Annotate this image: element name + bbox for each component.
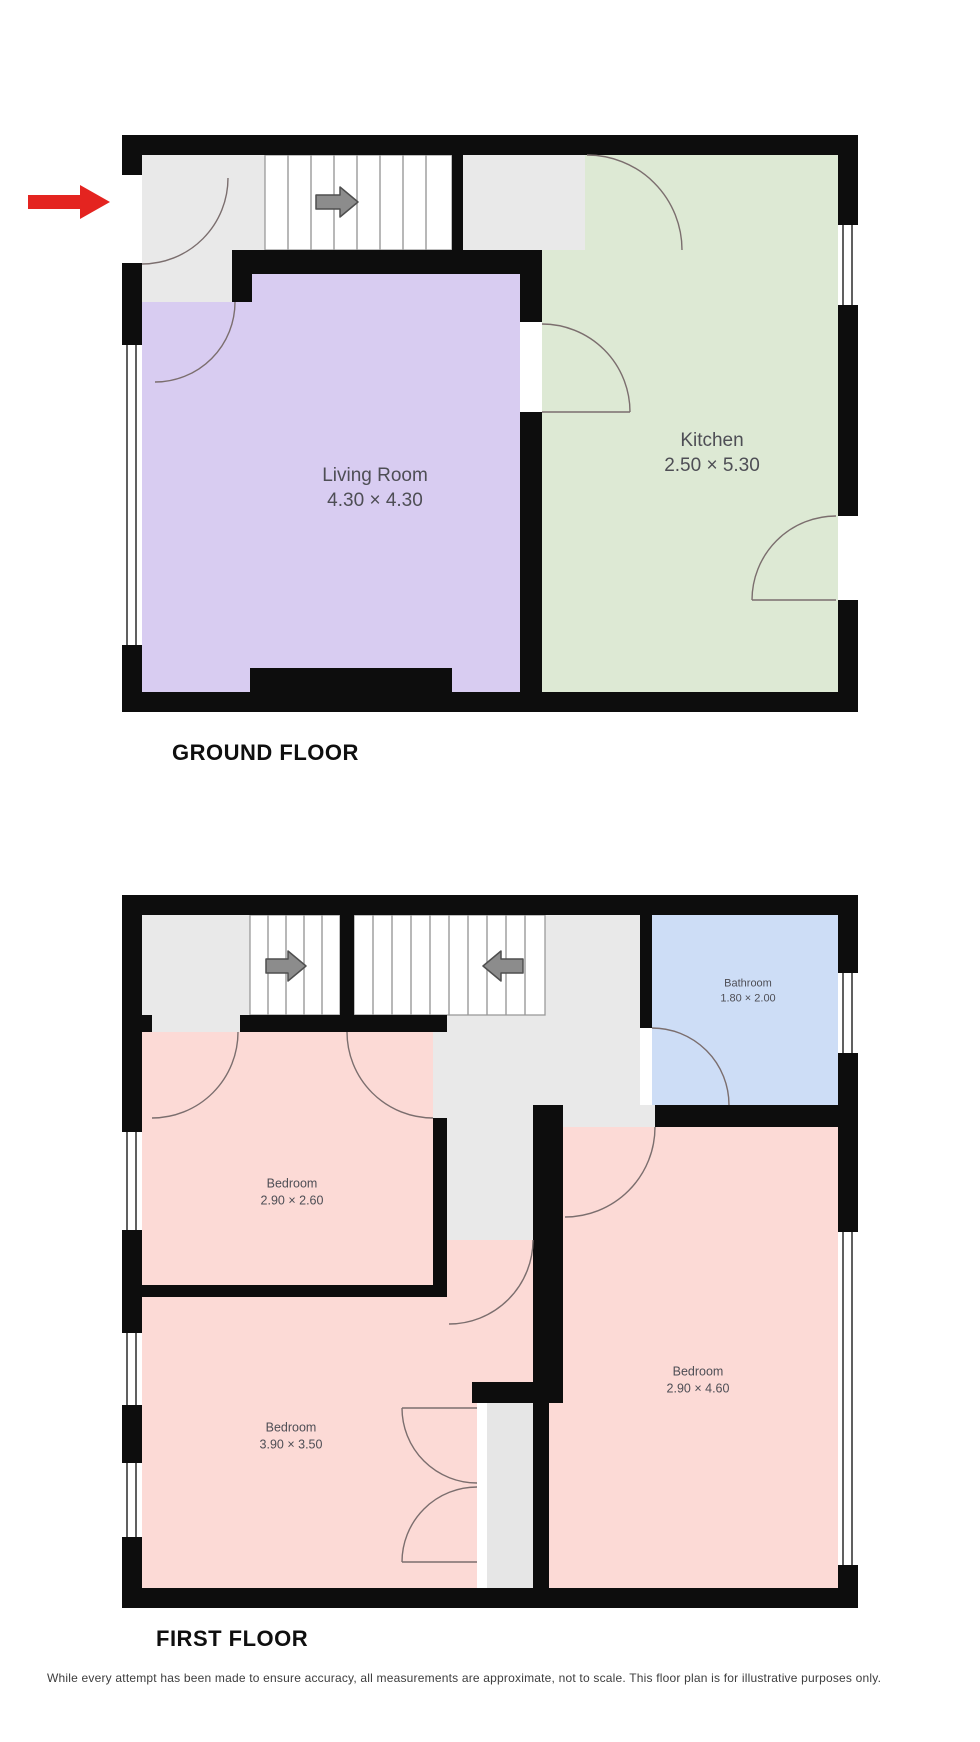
wall xyxy=(122,135,858,155)
door-opening xyxy=(640,1028,652,1105)
wall xyxy=(122,645,142,712)
wall xyxy=(472,1382,549,1403)
room-dimensions: 1.80 × 2.00 xyxy=(720,991,775,1006)
wall xyxy=(838,895,858,973)
room-name: Living Room xyxy=(322,463,428,488)
bedroom-label: Bedroom 3.90 × 3.50 xyxy=(260,1420,323,1453)
bedroom-area xyxy=(549,1127,838,1588)
door-opening xyxy=(563,1105,655,1127)
floor-plan-page: Living Room 4.30 × 4.30 Kitchen 2.50 × 5… xyxy=(0,0,980,1742)
bedroom-area xyxy=(142,1297,533,1588)
bedroom-label: Bedroom 2.90 × 4.60 xyxy=(667,1364,730,1397)
wall xyxy=(452,155,463,250)
bedroom-area xyxy=(447,1240,533,1297)
wall xyxy=(240,1015,447,1032)
wall xyxy=(122,895,858,915)
bathroom-area xyxy=(652,915,838,1105)
wall xyxy=(433,1118,447,1297)
room-dimensions: 2.90 × 4.60 xyxy=(667,1380,730,1397)
room-name: Bedroom xyxy=(261,1176,324,1193)
wall xyxy=(122,135,142,175)
kitchen-label: Kitchen 2.50 × 5.30 xyxy=(664,428,760,478)
closet-area xyxy=(487,1403,533,1588)
disclaimer-text: While every attempt has been made to ens… xyxy=(47,1671,881,1685)
wall xyxy=(122,692,858,712)
wall xyxy=(122,1537,142,1608)
door-opening xyxy=(433,1032,447,1118)
wall xyxy=(232,274,252,302)
staircase-up xyxy=(250,915,340,1015)
wall xyxy=(533,1403,549,1588)
entrance-arrow-icon xyxy=(28,185,110,219)
chimney-breast xyxy=(250,668,452,692)
floor-plan-canvas xyxy=(0,0,980,1742)
wall xyxy=(655,1105,838,1127)
landing-area xyxy=(142,915,250,1015)
wall xyxy=(122,895,142,1132)
bedroom-area xyxy=(142,1032,433,1285)
room-name: Kitchen xyxy=(664,428,760,453)
wall xyxy=(122,263,142,345)
wall xyxy=(142,1285,447,1297)
wall xyxy=(122,1230,142,1333)
first-floor-title: FIRST FLOOR xyxy=(156,1626,308,1652)
wall xyxy=(838,1053,858,1232)
door-opening xyxy=(152,1015,240,1032)
wall xyxy=(122,1588,858,1608)
landing-area xyxy=(545,915,640,1015)
wall xyxy=(533,1105,563,1403)
kitchen-area xyxy=(585,155,838,250)
wall xyxy=(838,305,858,516)
wall xyxy=(122,1405,142,1463)
landing-area xyxy=(447,1105,533,1240)
wall xyxy=(232,250,542,274)
living-room-label: Living Room 4.30 × 4.30 xyxy=(322,463,428,513)
wall xyxy=(838,600,858,712)
door-opening xyxy=(520,322,542,412)
wall xyxy=(142,1015,152,1032)
staircase-down xyxy=(354,915,545,1015)
room-dimensions: 2.50 × 5.30 xyxy=(664,453,760,478)
entrance-vestibule-area xyxy=(142,250,232,302)
wall xyxy=(838,1565,858,1608)
landing-area xyxy=(447,1015,640,1105)
wall xyxy=(838,135,858,225)
room-dimensions: 4.30 × 4.30 xyxy=(322,488,428,513)
room-name: Bedroom xyxy=(667,1364,730,1381)
bedroom-label: Bedroom 2.90 × 2.60 xyxy=(261,1176,324,1209)
wall xyxy=(340,915,354,1015)
bathroom-label: Bathroom 1.80 × 2.00 xyxy=(720,976,775,1005)
ground-floor-plan xyxy=(28,135,858,712)
room-dimensions: 3.90 × 3.50 xyxy=(260,1436,323,1453)
closet-door-opening xyxy=(477,1403,487,1588)
room-name: Bedroom xyxy=(260,1420,323,1437)
staircase-up xyxy=(265,155,452,250)
room-name: Bathroom xyxy=(720,976,775,991)
ground-floor-title: GROUND FLOOR xyxy=(172,740,359,766)
room-dimensions: 2.90 × 2.60 xyxy=(261,1192,324,1209)
wall xyxy=(640,915,652,1028)
